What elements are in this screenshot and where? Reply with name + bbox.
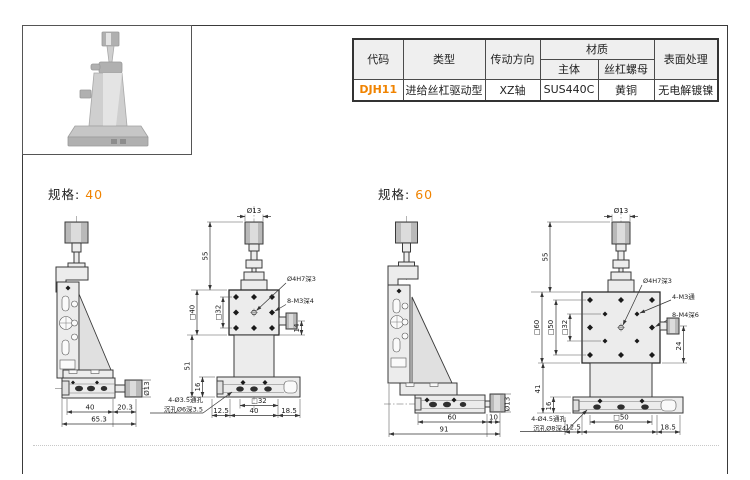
spec60-front-center-hole-label: Ø4H7深3	[643, 276, 672, 285]
spec60-side-view: Ø13 60 10 91	[384, 216, 512, 437]
spec40-front-knob-dia-label: Ø13	[247, 207, 261, 215]
spec40-front-view: Ø13 55 Ø4H7深3 8-M3深4 □40	[150, 206, 316, 418]
spec60-front-side-knob-label: 24	[675, 341, 683, 350]
spec40-front-note1: 4-Ø3.5通孔	[168, 395, 203, 404]
spec60-side-knob-dia-label: Ø13	[504, 397, 512, 411]
col-header-surface: 表面处理	[654, 39, 718, 79]
spec60-front-height-label: 55	[542, 253, 550, 262]
drawing-spec40: Ø13 40 20.3 65.3 Ø13 55	[35, 200, 335, 445]
spec40-side-width-total-label: 65.3	[91, 416, 107, 424]
spec40-front-base-width-label: 40	[250, 407, 259, 415]
col-header-material: 材质	[540, 39, 654, 59]
col-header-code: 代码	[353, 39, 403, 79]
spec40-front-hole-square-label: □32	[215, 305, 223, 321]
spec40-side-knob-dia-label: Ø13	[143, 381, 151, 395]
spec40-side-width-top-label: 40	[86, 404, 95, 412]
spec60-front-view: Ø13 55 Ø4H7深3 4-M3通	[520, 207, 699, 435]
spec40-side-view: Ø13 40 20.3 65.3	[55, 216, 151, 427]
cell-direction: XZ轴	[485, 79, 540, 101]
spec60-front-note1: 4-Ø4.5通孔	[531, 414, 566, 423]
spec40-front-note2: 沉孔Ø6深3.5	[164, 405, 203, 414]
spec60-front-base-width-label: 60	[615, 424, 624, 432]
spec40-front-base-hole-square-label: □32	[251, 397, 267, 405]
spec60-front-mid-holes-label: 4-M3通	[672, 292, 695, 301]
spec60-front-inner-square-label: □32	[561, 320, 569, 336]
cell-code: DJH11	[353, 79, 403, 101]
cell-material-body: SUS440C	[540, 79, 598, 101]
spec40-front-plate-size-label: □40	[189, 305, 197, 321]
spec60-side-width-top-label: 60	[448, 414, 457, 422]
spec40-front-corner-holes-label: 8-M3深4	[287, 296, 314, 305]
spec60-front-hole-square-label: □50	[547, 320, 555, 336]
spec40-front-side-knob-label: 14	[293, 323, 301, 332]
table-row: DJH11 进给丝杠驱动型 XZ轴 SUS440C 黄铜 无电解镀镍	[353, 79, 718, 101]
spec60-front-body-height-label: 41	[534, 385, 542, 394]
spec40-front-base-left-label: 12.5	[213, 407, 229, 415]
col-header-material-body: 主体	[540, 59, 598, 79]
cell-surface: 无电解镀镍	[654, 79, 718, 101]
spec60-front-plate-size-label: □60	[533, 320, 541, 336]
spec-table: 代码 类型 传动方向 材质 表面处理 主体 丝杠螺母 DJH11 进给丝杠驱动型…	[352, 38, 719, 102]
spec40-front-height-label: 55	[202, 252, 210, 261]
spec40-front-body-height-label: 51	[184, 362, 192, 371]
cell-type: 进给丝杠驱动型	[403, 79, 485, 101]
spec60-front-base-height-label: 16	[545, 401, 553, 410]
spec40-front-center-hole-label: Ø4H7深3	[287, 274, 316, 283]
spec60-front-base-right-label: 18.5	[660, 424, 676, 432]
col-header-material-nut: 丝杠螺母	[598, 59, 654, 79]
spec60-side-width-knob-label: 10	[489, 414, 498, 422]
spec60-side-width-total-label: 91	[440, 426, 449, 434]
col-header-direction: 传动方向	[485, 39, 540, 79]
spec40-front-base-height-label: 16	[194, 382, 202, 391]
spec60-front-base-hole-square-label: □50	[613, 414, 629, 422]
spec40-front-base-right-label: 18.5	[281, 407, 297, 415]
spec60-front-knob-dia-label: Ø13	[614, 207, 628, 215]
spec40-side-width-knob-label: 20.3	[117, 404, 133, 412]
drawing-spec60: Ø13 60 10 91 Ø13 55	[370, 200, 730, 450]
cell-material-nut: 黄铜	[598, 79, 654, 101]
col-header-type: 类型	[403, 39, 485, 79]
product-photo-box	[22, 25, 192, 155]
product-photo	[23, 26, 191, 154]
